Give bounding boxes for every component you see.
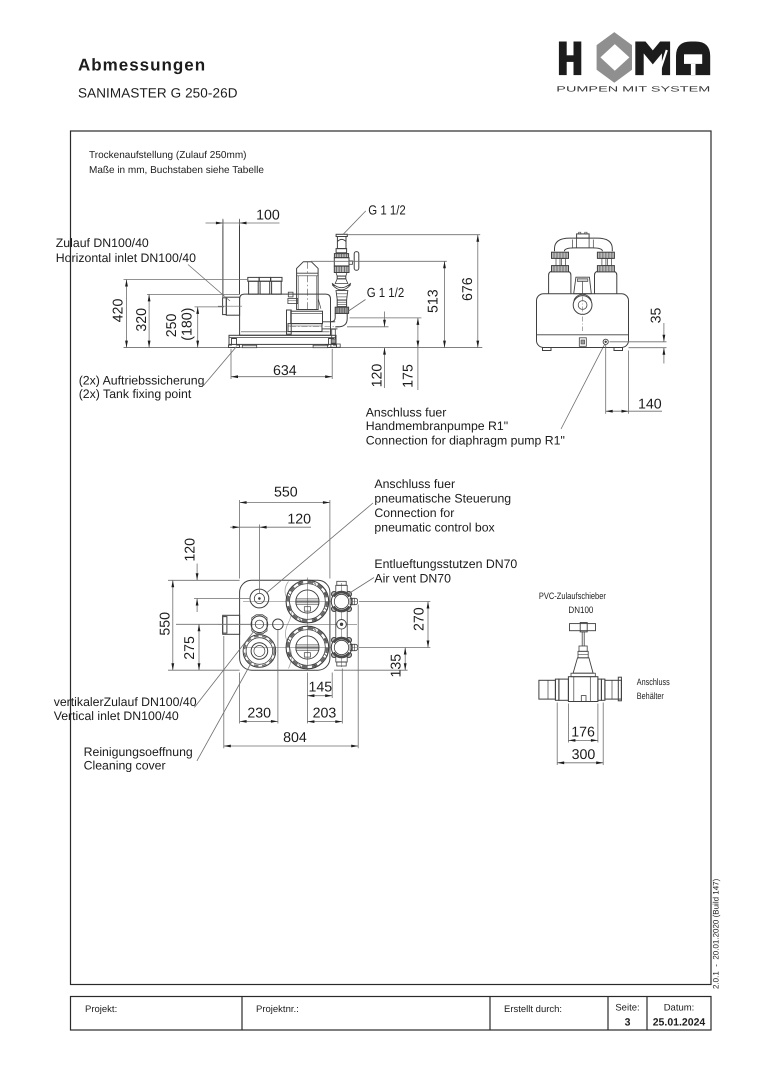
svg-text:pneumatic control box: pneumatic control box	[374, 520, 495, 534]
svg-text:120: 120	[369, 364, 385, 388]
svg-text:Erstellt durch:: Erstellt durch:	[504, 1004, 562, 1015]
svg-text:Anschluss fuer: Anschluss fuer	[366, 405, 447, 419]
svg-text:140: 140	[638, 397, 662, 413]
svg-text:250: 250	[164, 313, 180, 337]
svg-text:230: 230	[247, 705, 271, 721]
svg-text:Abmessungen: Abmessungen	[78, 56, 206, 75]
svg-text:300: 300	[572, 747, 596, 763]
svg-text:2.0.1 - 20.01.2020 (Build 14: 2.0.1 - 20.01.2020 (Build 147)	[712, 878, 721, 989]
svg-text:Maße in mm, Buchstaben siehe T: Maße in mm, Buchstaben siehe Tabelle	[89, 165, 264, 176]
svg-text:176: 176	[571, 725, 595, 741]
svg-text:SANIMASTER G 250-26D: SANIMASTER G 250-26D	[78, 86, 238, 101]
svg-text:pneumatische Steuerung: pneumatische Steuerung	[374, 492, 511, 506]
svg-text:Projektnr.:: Projektnr.:	[256, 1004, 299, 1015]
svg-text:175: 175	[401, 364, 417, 388]
svg-text:120: 120	[287, 512, 311, 528]
svg-text:vertikalerZulauf DN100/40: vertikalerZulauf DN100/40	[54, 695, 197, 709]
svg-text:804: 804	[283, 730, 307, 746]
svg-text:Connection for diaphragm pump: Connection for diaphragm pump R1"	[366, 434, 565, 448]
svg-text:Zulauf DN100/40: Zulauf DN100/40	[56, 236, 149, 250]
svg-text:513: 513	[426, 289, 442, 313]
svg-text:145: 145	[308, 679, 332, 695]
svg-text:Vertical inlet DN100/40: Vertical inlet DN100/40	[54, 709, 179, 723]
svg-text:Horizontal inlet DN100/40: Horizontal inlet DN100/40	[56, 251, 196, 265]
svg-text:PVC-Zulaufschieber: PVC-Zulaufschieber	[539, 591, 606, 601]
svg-text:100: 100	[256, 208, 280, 224]
svg-text:PUMPEN MIT SYSTEM: PUMPEN MIT SYSTEM	[556, 84, 710, 93]
svg-text:(180): (180)	[179, 308, 195, 341]
svg-text:120: 120	[182, 538, 198, 562]
svg-text:550: 550	[158, 612, 174, 636]
svg-text:G 1 1/2: G 1 1/2	[368, 202, 406, 217]
svg-text:Seite:: Seite:	[615, 1003, 639, 1014]
svg-text:25.01.2024: 25.01.2024	[653, 1017, 706, 1029]
svg-text:Trockenaufstellung (Zulauf 250: Trockenaufstellung (Zulauf 250mm)	[89, 150, 246, 161]
svg-text:420: 420	[110, 299, 126, 323]
svg-text:676: 676	[460, 277, 476, 301]
svg-text:135: 135	[389, 654, 405, 678]
svg-text:(2x) Auftriebssicherung: (2x) Auftriebssicherung	[79, 374, 205, 388]
svg-text:270: 270	[411, 607, 427, 631]
svg-text:DN100: DN100	[568, 605, 593, 615]
svg-text:275: 275	[182, 636, 198, 660]
svg-text:550: 550	[274, 485, 298, 501]
svg-text:Anschluss: Anschluss	[637, 677, 670, 687]
svg-text:Air vent DN70: Air vent DN70	[374, 571, 451, 585]
svg-text:Anschluss fuer: Anschluss fuer	[374, 477, 455, 491]
svg-text:35: 35	[648, 308, 664, 324]
svg-text:(2x) Tank fixing point: (2x) Tank fixing point	[79, 387, 192, 401]
svg-text:Handmembranpumpe R1": Handmembranpumpe R1"	[366, 419, 508, 433]
svg-text:320: 320	[134, 308, 150, 332]
svg-text:Entlueftungsstutzen DN70: Entlueftungsstutzen DN70	[374, 557, 517, 571]
svg-text:Projekt:: Projekt:	[85, 1004, 117, 1015]
svg-text:Cleaning cover: Cleaning cover	[84, 759, 166, 773]
svg-text:3: 3	[625, 1017, 631, 1029]
svg-text:Connection for: Connection for	[374, 506, 454, 520]
svg-text:G 1 1/2: G 1 1/2	[367, 285, 405, 300]
svg-text:203: 203	[313, 705, 337, 721]
svg-text:Reinigungsoeffnung: Reinigungsoeffnung	[84, 745, 193, 759]
svg-text:634: 634	[273, 363, 297, 379]
svg-text:Datum:: Datum:	[664, 1003, 695, 1014]
svg-text:Behälter: Behälter	[637, 691, 664, 701]
